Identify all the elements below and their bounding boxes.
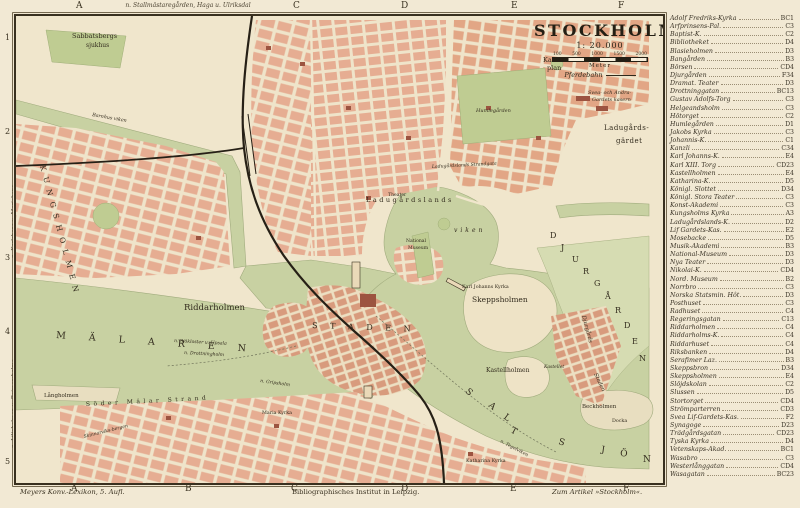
map-sheet: n. Stallmästaregården, Haga u. Ulriksdal…: [0, 0, 800, 508]
index-entry-name: Slöjdskolan: [670, 382, 707, 388]
index-entry-gridref: C4: [785, 325, 794, 331]
index-entry-name: Blasieholmen: [670, 49, 713, 55]
leader-dots: [719, 377, 784, 378]
leader-dots: [698, 288, 783, 289]
index-entry-name: Karl XIII. Torg: [670, 163, 716, 169]
leader-dots: [726, 467, 778, 468]
index-entry-name: Börsen: [670, 65, 692, 71]
index-entry-gridref: F2: [786, 415, 794, 421]
index-entry-gridref: CD4: [780, 399, 794, 405]
index-entry-name: Nord. Museum: [670, 277, 718, 283]
leader-dots: [720, 206, 783, 207]
leader-dots: [718, 190, 779, 191]
map-label: Skeppsholmen: [472, 295, 528, 304]
index-entry-name: Kastellholmen: [670, 171, 716, 177]
leader-dots: [718, 174, 784, 175]
index-entry-gridref: C3: [785, 97, 794, 103]
leader-dots: [712, 182, 783, 183]
map-label: Långholmen: [44, 392, 79, 399]
grid-number-left: 4: [5, 327, 10, 336]
leader-dots: [707, 60, 783, 61]
index-entry-name: Westerlånggatan: [670, 464, 724, 470]
map-label: D: [624, 321, 630, 330]
grid-letter-top: C: [293, 1, 300, 11]
leader-dots: [701, 117, 783, 118]
index-entry-name: Kanzli: [670, 146, 690, 152]
index-entry-name: Helgeandsholm: [670, 106, 720, 112]
index-entry-gridref: CD23: [776, 163, 794, 169]
index-entry-gridref: D5: [785, 236, 794, 242]
index-entry-name: Svea Lif-Gardets-Kas.: [670, 415, 739, 421]
leader-dots: [739, 19, 779, 20]
map-label: Gardets kasern: [592, 97, 631, 103]
index-entry-name: Regeringsgatan: [670, 317, 721, 323]
leader-dots: [722, 410, 778, 411]
map-label: sjukhus: [86, 42, 109, 49]
map-label: Maria Kyrka: [262, 410, 292, 416]
leader-dots: [732, 223, 783, 224]
index-entry-name: Nikolai-K.: [670, 268, 702, 274]
index-entry-name: Jakobs Kyrka: [670, 130, 712, 136]
index-entry-gridref: CD23: [776, 431, 794, 437]
index-entry-name: Tyska Kyrka: [670, 439, 709, 445]
map-label: viken: [454, 227, 485, 234]
leader-dots: [731, 214, 783, 215]
index-entry-gridref: B3: [786, 244, 794, 250]
map-label: U: [572, 255, 579, 264]
index-entry-name: Posthuset: [670, 301, 701, 307]
index-entry: WasagatanBC23: [670, 472, 794, 480]
index-entry-name: Riksbanken: [670, 350, 707, 356]
map-label: Beckholmen: [582, 404, 617, 410]
map-label: Ladugårdslands: [366, 195, 454, 204]
index-entry-name: Drottninggatan: [670, 89, 719, 95]
index-entry-gridref: B3: [786, 57, 794, 63]
legend-pferdebahn-label: Pferdebahn: [564, 71, 602, 79]
leader-dots: [724, 231, 784, 232]
map-label: E: [632, 337, 638, 346]
map-label: Ladugårds-: [604, 123, 649, 132]
map-label: Sabbatsbergs: [72, 32, 117, 40]
leader-dots: [717, 328, 783, 329]
scale-tick-label: 100: [553, 52, 562, 57]
map-label: Kastellholmen: [486, 367, 530, 374]
leader-dots: [736, 198, 783, 199]
index-entry-gridref: BC1: [781, 447, 794, 453]
index-entry-name: Lif Gardets-Kas.: [670, 228, 722, 234]
index-entry-gridref: C1: [785, 138, 794, 144]
stockholm-map: SabbatsbergssjukhusKarlaplanSvea- och An…: [16, 16, 663, 483]
scale-tick-label: 500: [572, 52, 581, 57]
leader-dots: [711, 43, 783, 44]
leader-dots: [708, 239, 783, 240]
index-entry-name: Trädgårdsgatan: [670, 431, 721, 437]
leader-dots: [711, 442, 783, 443]
index-entry-name: Skeppsholmen: [670, 374, 717, 380]
leader-dots: [728, 450, 778, 451]
map-label: R: [615, 306, 622, 315]
index-entry-name: Nya Teater: [670, 260, 705, 266]
index-entry-gridref: E4: [786, 374, 794, 380]
index-entry-gridref: C34: [781, 146, 794, 152]
top-route-note: n. Stallmästaregården, Haga u. Ulriksdal: [108, 2, 268, 9]
index-entry-gridref: C4: [785, 342, 794, 348]
grid-letter-top: F: [618, 1, 624, 11]
index-entry-name: Karl Johanns-K.: [670, 154, 720, 160]
index-entry-gridref: C4: [785, 333, 794, 339]
index-entry-name: Gustav Adolfs-Torg: [670, 97, 731, 103]
index-entry-gridref: BC1: [781, 16, 794, 22]
index-entry-gridref: D3: [785, 260, 794, 266]
grid-letter-bottom: F: [623, 484, 629, 494]
map-label: R: [583, 267, 590, 276]
map-label: G: [594, 279, 600, 288]
index-list: Adolf Fredriks-KyrkaBC1Arfprinsens-Pal.C…: [670, 16, 794, 480]
leader-dots: [715, 52, 783, 53]
index-entry-gridref: E2: [786, 228, 794, 234]
grid-letter-top: A: [76, 1, 83, 11]
leader-dots: [741, 418, 784, 419]
leader-dots: [705, 402, 778, 403]
leader-dots: [708, 141, 783, 142]
leader-dots: [718, 166, 774, 167]
leader-dots: [714, 133, 784, 134]
index-entry-gridref: D4: [785, 350, 794, 356]
map-label: Svea- och Andra-: [588, 90, 631, 96]
pferdebahn-line-symbol: [606, 75, 636, 76]
index-entry-name: Vetenskaps-Akad.: [670, 447, 726, 453]
index-entry-gridref: CD3: [780, 407, 794, 413]
leader-dots: [702, 312, 783, 313]
index-entry-name: Baptist-K.: [670, 32, 702, 38]
index-entry-name: Adolf Fredriks-Kyrka: [670, 16, 737, 22]
scale-unit-label: Meter: [534, 63, 665, 69]
map-label: Riddarholmen: [184, 303, 246, 313]
grid-letter-top: E: [511, 1, 518, 11]
map-label: Museum: [408, 245, 429, 251]
leader-dots: [703, 426, 779, 427]
index-entry-gridref: C3: [785, 203, 794, 209]
leader-dots: [710, 369, 779, 370]
grid-number-left: 2: [5, 127, 10, 136]
index-entry-name: Radhuset: [670, 309, 700, 315]
index-entry-name: Synagoge: [670, 423, 701, 429]
leader-dots: [722, 157, 784, 158]
index-entry-gridref: B3: [786, 358, 794, 364]
leader-dots: [722, 109, 783, 110]
index-entry-name: Norrbro: [670, 285, 696, 291]
leader-dots: [720, 280, 784, 281]
map-label: Karl Johanns Kyrka: [462, 284, 509, 290]
map-label: N: [639, 354, 646, 363]
index-entry-gridref: CD4: [780, 65, 794, 71]
index-entry-name: Wasagatan: [670, 472, 705, 478]
map-label: J: [560, 243, 564, 252]
index-entry-gridref: CD4: [780, 268, 794, 274]
leader-dots: [729, 255, 783, 256]
index-entry-gridref: B2: [786, 277, 794, 283]
map-label: gärdet: [616, 137, 642, 145]
leader-dots: [721, 336, 783, 337]
index-entry-name: National-Museum: [670, 252, 727, 258]
index-entry-gridref: D4: [785, 40, 794, 46]
leader-dots: [716, 125, 783, 126]
map-label: Theater: [388, 192, 407, 198]
index-entry-gridref: BC23: [777, 472, 794, 478]
map-canvas: SabbatsbergssjukhusKarlaplanSvea- och An…: [14, 14, 665, 485]
index-entry-gridref: F34: [782, 73, 794, 79]
index-entry-name: Serafimer Laz.: [670, 358, 717, 364]
index-entry-gridref: C3: [785, 130, 794, 136]
index-entry-name: Stortorget: [670, 399, 703, 405]
grid-number-left: 3: [5, 253, 10, 262]
leader-dots: [723, 27, 783, 28]
leader-dots: [704, 35, 784, 36]
index-entry-gridref: E4: [786, 154, 794, 160]
leader-dots: [703, 304, 783, 305]
index-entry-gridref: BC13: [777, 89, 794, 95]
index-entry-gridref: C2: [785, 382, 794, 388]
index-entry-name: Katharina-K.: [670, 179, 710, 185]
index-entry-gridref: C3: [785, 106, 794, 112]
map-label: N: [643, 455, 651, 465]
index-entry-name: Dramat. Teater: [670, 81, 719, 87]
leader-dots: [697, 393, 783, 394]
index-entry-name: Konst-Akademi: [670, 203, 718, 209]
leader-dots: [721, 247, 783, 248]
scale-bar: [552, 57, 648, 62]
grid-letter-bottom: A: [71, 484, 78, 494]
index-entry-name: Bangården: [670, 57, 705, 63]
index-entry-name: Riddarhuset: [670, 342, 709, 348]
leader-dots: [743, 296, 783, 297]
map-label: Kastellet: [543, 364, 564, 370]
scale-tick-label: 2000: [636, 52, 647, 57]
grid-number-left: 5: [5, 457, 10, 466]
index-entry-name: Kungsholms Kyrka: [670, 211, 729, 217]
scale-tick-label: 1500: [613, 52, 624, 57]
grid-letter-bottom: E: [510, 484, 517, 494]
index-entry-gridref: D3: [785, 252, 794, 258]
leader-dots: [709, 353, 783, 354]
leader-dots: [700, 459, 784, 460]
leader-dots: [707, 475, 775, 476]
index-entry-gridref: CD4: [780, 464, 794, 470]
leader-dots: [721, 92, 775, 93]
index-entry-name: Humlegården: [670, 122, 714, 128]
index-entry-gridref: C2: [785, 32, 794, 38]
index-entry-gridref: A3: [786, 211, 794, 217]
leader-dots: [723, 434, 774, 435]
grid-letter-bottom: B: [185, 484, 192, 494]
index-entry-gridref: C3: [785, 24, 794, 30]
grid-letter-bottom: D: [401, 484, 408, 494]
leader-dots: [721, 84, 784, 85]
index-entry-gridref: D34: [781, 366, 794, 372]
scale-tick-label: 1000: [591, 52, 602, 57]
leader-dots: [692, 149, 780, 150]
index-entry-name: Königl. Stora Teater: [670, 195, 734, 201]
index-entry-gridref: D3: [785, 81, 794, 87]
map-label: Katharina Kyrka: [466, 458, 506, 464]
leader-dots: [723, 320, 780, 321]
map-label: D: [550, 231, 556, 240]
index-entry-name: Königl. Slottet: [670, 187, 716, 193]
index-entry-gridref: C13: [781, 317, 794, 323]
grid-letter-bottom: C: [291, 484, 298, 494]
index-entry-gridref: D1: [785, 122, 794, 128]
map-label: Å: [604, 292, 611, 301]
legend-pferdebahn: Pferdebahn: [534, 71, 665, 79]
index-entry-gridref: D5: [785, 390, 794, 396]
index-entry-gridref: D3: [785, 293, 794, 299]
index-entry-name: Arfprinsens-Pal.: [670, 24, 721, 30]
index-entry-name: Slussen: [670, 390, 695, 396]
index-entry-gridref: D2: [785, 220, 794, 226]
index-entry-gridref: C4: [785, 309, 794, 315]
index-entry-gridref: D3: [785, 49, 794, 55]
index-entry-name: Wasabro: [670, 456, 698, 462]
leader-dots: [694, 68, 778, 69]
grid-number-left: 1: [5, 33, 10, 42]
map-label: Humlegården: [475, 107, 511, 114]
index-entry-gridref: D23: [781, 423, 794, 429]
map-label: Docka: [612, 418, 627, 424]
index-entry-gridref: D4: [785, 439, 794, 445]
title-block: STOCKHOLM 1: 20.000 100500100015002000 M…: [534, 21, 665, 79]
index-entry-name: Ladugårdslands-K.: [670, 220, 730, 226]
map-scale-text: 1: 20.000: [534, 41, 665, 50]
index-entry-gridref: D34: [781, 187, 794, 193]
map-title: STOCKHOLM: [534, 21, 665, 40]
leader-dots: [719, 361, 784, 362]
index-entry-gridref: E4: [786, 171, 794, 177]
index-entry-name: Djurgården: [670, 73, 707, 79]
leader-dots: [704, 271, 779, 272]
index-entry-name: Riddarholmen: [670, 325, 715, 331]
index-entry-name: Norska Statsmin. Hôt.: [670, 293, 741, 299]
grid-letter-top: D: [401, 1, 408, 11]
index-entry-gridref: C2: [785, 114, 794, 120]
index-entry-name: Hötorget: [670, 114, 699, 120]
leader-dots: [707, 263, 783, 264]
index-entry-name: Bibliotheket: [670, 40, 709, 46]
index-entry-gridref: C3: [785, 456, 794, 462]
index-entry-name: Johannis-K.: [670, 138, 706, 144]
index-entry-gridref: C3: [785, 195, 794, 201]
index-entry-name: Riddarholms-K.: [670, 333, 719, 339]
index-entry-name: Mosebacke: [670, 236, 706, 242]
leader-dots: [709, 76, 780, 77]
index-entry-name: Strömparterren: [670, 407, 720, 413]
leader-dots: [733, 100, 784, 101]
leader-dots: [711, 345, 783, 346]
map-label: National: [406, 238, 427, 244]
index-entry-gridref: D5: [785, 179, 794, 185]
leader-dots: [709, 385, 784, 386]
index-entry-name: Skeppsbron: [670, 366, 708, 372]
index-entry-name: Musik-Akademi: [670, 244, 719, 250]
index-entry-gridref: C3: [785, 301, 794, 307]
map-label: Ö: [620, 447, 628, 459]
index-entry-gridref: C3: [785, 285, 794, 291]
